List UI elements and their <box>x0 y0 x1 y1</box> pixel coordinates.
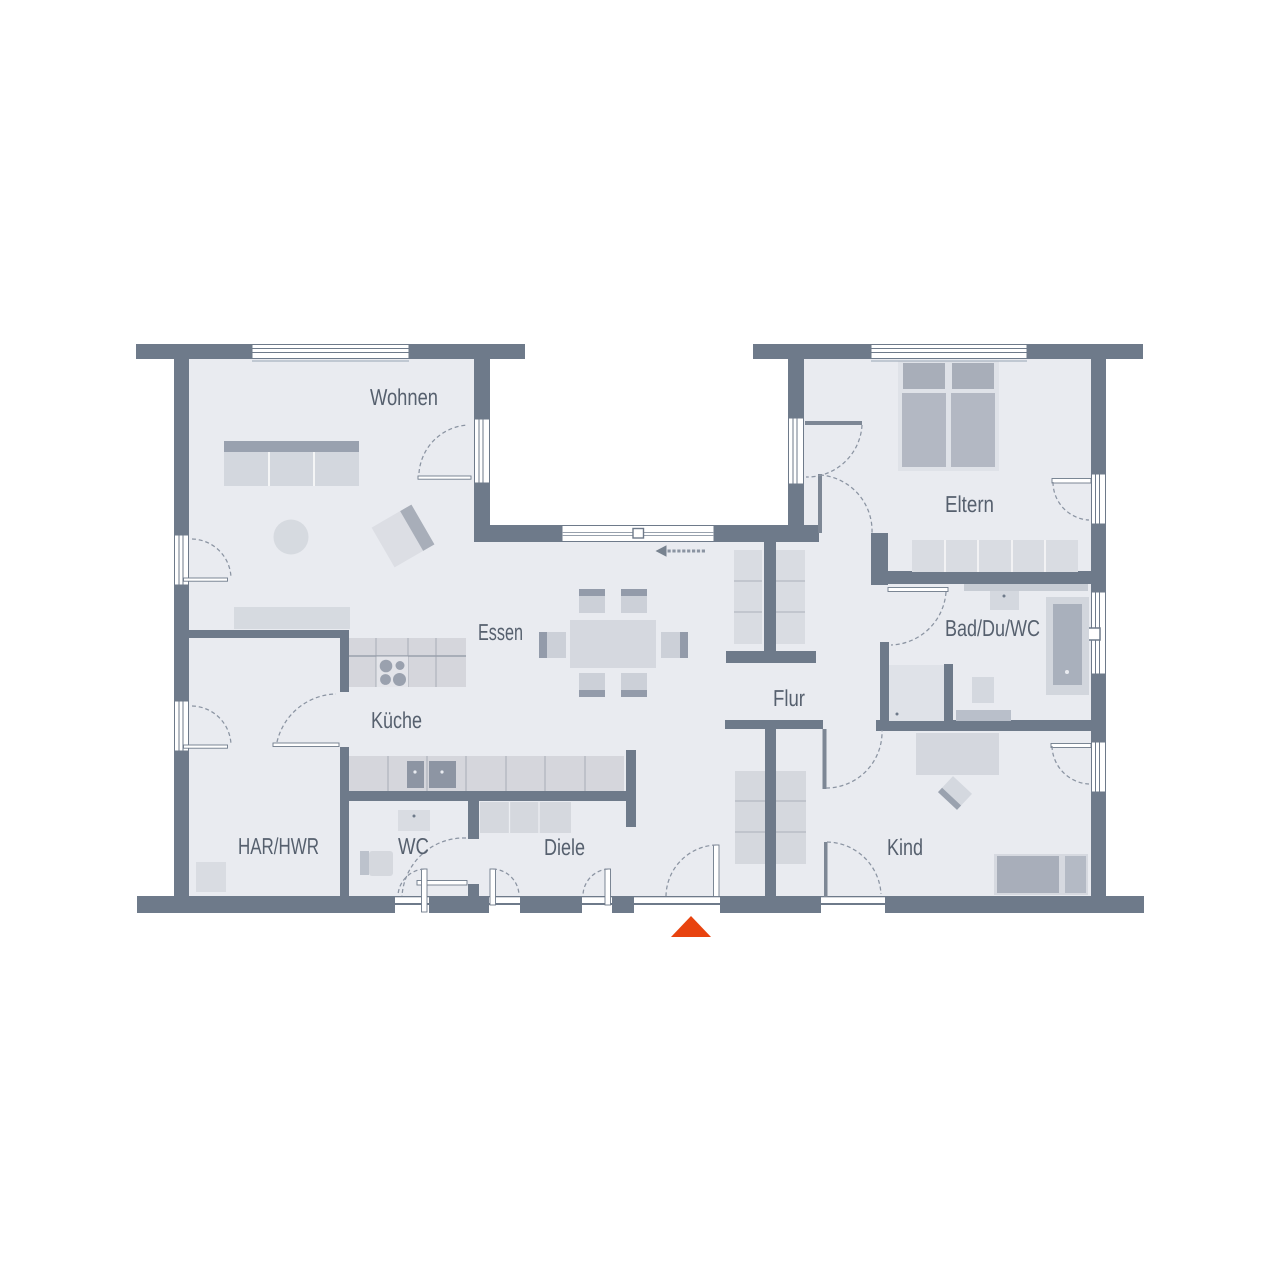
svg-text:Eltern: Eltern <box>945 491 994 517</box>
svg-text:WC: WC <box>398 833 429 859</box>
svg-text:Essen: Essen <box>478 619 523 645</box>
svg-text:Bad/Du/WC: Bad/Du/WC <box>945 615 1040 641</box>
svg-text:Flur: Flur <box>773 685 805 711</box>
svg-text:HAR/HWR: HAR/HWR <box>238 833 319 859</box>
svg-text:Wohnen: Wohnen <box>370 384 438 410</box>
svg-text:Diele: Diele <box>544 834 585 860</box>
svg-text:Küche: Küche <box>371 707 422 733</box>
svg-text:Kind: Kind <box>887 834 923 860</box>
